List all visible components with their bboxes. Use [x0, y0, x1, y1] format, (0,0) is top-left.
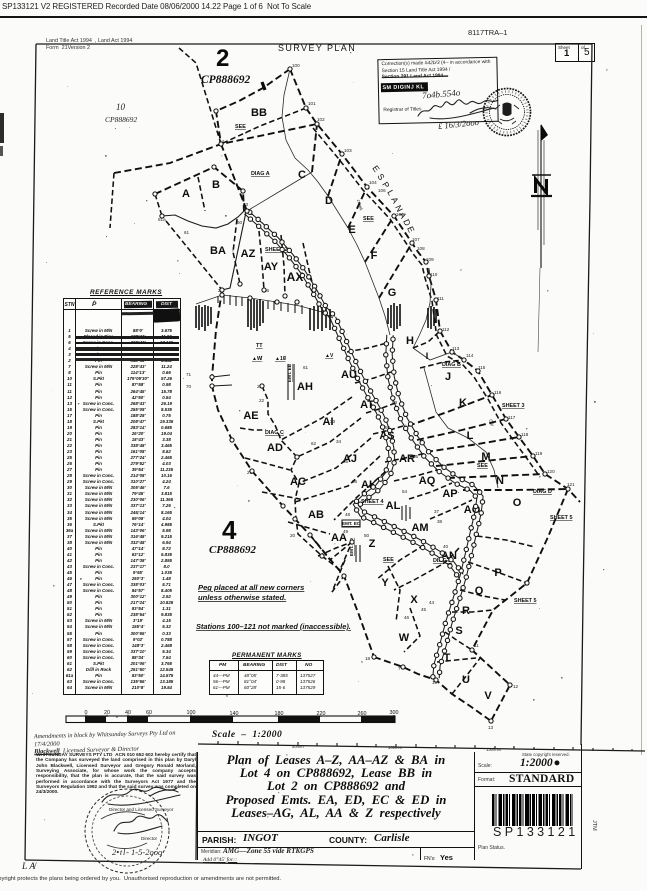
- svg-text:BA: BA: [210, 245, 226, 257]
- svg-text:J: J: [445, 371, 451, 383]
- svg-text:111: 111: [437, 296, 444, 301]
- svg-text:N: N: [496, 475, 504, 487]
- svg-text:L: L: [467, 430, 474, 442]
- svg-text:AP: AP: [442, 488, 457, 500]
- svg-text:2: 2: [216, 45, 229, 72]
- svg-text:11: 11: [474, 643, 479, 648]
- svg-text:▲V: ▲V: [325, 353, 334, 359]
- svg-text:106: 106: [396, 212, 404, 217]
- svg-text:E: E: [405, 225, 417, 235]
- svg-text:23: 23: [257, 384, 263, 389]
- svg-text:S: S: [375, 172, 387, 183]
- svg-text:AZ: AZ: [241, 248, 256, 260]
- svg-text:D: D: [401, 218, 413, 229]
- svg-text:TT: TT: [256, 343, 263, 349]
- svg-text:AB: AB: [308, 509, 324, 521]
- svg-text:20: 20: [290, 533, 296, 538]
- svg-text:EMT. EC: EMT. EC: [342, 521, 361, 526]
- svg-text:61a: 61a: [158, 217, 166, 222]
- svg-text:DIAG D: DIAG D: [533, 489, 552, 495]
- svg-text:EMT. ED: EMT. ED: [349, 537, 354, 556]
- svg-text:SEE: SEE: [363, 216, 374, 222]
- svg-text:63: 63: [243, 202, 249, 207]
- svg-text:AY: AY: [264, 261, 279, 273]
- svg-text:109: 109: [426, 257, 434, 262]
- svg-text:AR: AR: [399, 453, 415, 465]
- svg-text:AM: AM: [411, 522, 428, 534]
- svg-text:Stations 100–121 not marked (i: Stations 100–121 not marked (inaccessibl…: [196, 622, 351, 631]
- svg-text:CP888692: CP888692: [105, 115, 137, 124]
- svg-text:22: 22: [259, 398, 265, 403]
- svg-text:115: 115: [478, 365, 486, 370]
- svg-text:16: 16: [432, 680, 438, 685]
- svg-text:116: 116: [494, 390, 502, 395]
- svg-text:20: 20: [104, 710, 110, 716]
- svg-text:Peg placed at all new corners: Peg placed at all new corners: [198, 583, 304, 592]
- svg-text:AN: AN: [441, 550, 457, 562]
- svg-text:F: F: [371, 250, 378, 262]
- svg-text:60: 60: [146, 710, 152, 716]
- svg-text:M: M: [481, 451, 490, 463]
- svg-text:106: 106: [378, 188, 386, 193]
- svg-text:AS: AS: [379, 430, 394, 442]
- svg-text:55: 55: [413, 454, 419, 459]
- svg-text:42: 42: [457, 566, 463, 571]
- svg-text:G: G: [388, 287, 397, 299]
- svg-text:AX: AX: [287, 270, 304, 284]
- svg-text:SEE: SEE: [477, 463, 488, 469]
- svg-text:48: 48: [345, 512, 351, 517]
- svg-text:H: H: [406, 335, 414, 347]
- svg-text:AI: AI: [323, 416, 334, 428]
- svg-text:K: K: [459, 397, 467, 409]
- svg-text:62: 62: [311, 441, 317, 446]
- svg-text:40: 40: [443, 544, 449, 549]
- svg-text:220: 220: [317, 711, 326, 717]
- svg-text:26: 26: [264, 288, 270, 293]
- svg-text:S: S: [455, 625, 462, 637]
- svg-text:114: 114: [466, 353, 474, 358]
- svg-text:34: 34: [336, 439, 342, 444]
- svg-text:121: 121: [567, 482, 575, 487]
- svg-text:21: 21: [247, 470, 253, 475]
- svg-text:AA: AA: [331, 532, 347, 544]
- svg-text:Gly: Gly: [488, 419, 495, 428]
- svg-text:SEE: SEE: [383, 557, 394, 563]
- svg-text:44: 44: [429, 600, 435, 605]
- svg-text:BB: BB: [251, 107, 267, 119]
- svg-text:AE: AE: [243, 410, 258, 422]
- svg-text:12: 12: [513, 684, 519, 689]
- svg-text:10: 10: [116, 102, 126, 112]
- svg-text:2: 2: [250, 211, 253, 216]
- svg-text:46: 46: [354, 498, 360, 503]
- svg-text:AL: AL: [386, 500, 401, 512]
- svg-text:A: A: [397, 210, 409, 220]
- svg-text:DIAG D: DIAG D: [433, 558, 452, 564]
- svg-text:100: 100: [187, 710, 196, 716]
- svg-text:Scale – 1:2000: Scale – 1:2000: [212, 730, 282, 740]
- svg-text:B: B: [212, 179, 220, 191]
- svg-text:EMT. EB: EMT. EB: [287, 363, 292, 382]
- svg-text:49: 49: [343, 529, 349, 534]
- svg-text:13: 13: [488, 725, 494, 730]
- svg-text:I: I: [426, 351, 429, 361]
- svg-text:P: P: [380, 180, 392, 191]
- svg-text:101: 101: [308, 101, 316, 106]
- svg-text:SHEET 5: SHEET 5: [550, 515, 572, 521]
- svg-text:AK: AK: [361, 479, 377, 491]
- svg-text:70: 70: [186, 384, 192, 389]
- svg-text:A: A: [389, 195, 401, 206]
- svg-text:104: 104: [369, 180, 377, 185]
- svg-text:71: 71: [186, 372, 192, 377]
- svg-text:108: 108: [417, 246, 425, 251]
- svg-text:R: R: [462, 605, 470, 617]
- svg-text:113: 113: [452, 346, 460, 351]
- svg-text:102: 102: [317, 117, 325, 122]
- svg-text:D: D: [325, 195, 333, 207]
- svg-text:L: L: [385, 188, 397, 198]
- svg-text:0: 0: [85, 710, 88, 716]
- svg-text:7: 7: [398, 666, 401, 671]
- svg-text:64: 64: [219, 139, 225, 144]
- svg-text:119: 119: [535, 451, 543, 456]
- svg-text:DIAG B: DIAG B: [442, 362, 461, 368]
- svg-text:AT: AT: [360, 399, 374, 411]
- svg-text:Y: Y: [381, 577, 389, 589]
- svg-text:50: 50: [364, 533, 370, 538]
- svg-text:107: 107: [412, 237, 420, 242]
- svg-text:36: 36: [352, 479, 358, 484]
- svg-text:56: 56: [385, 425, 391, 430]
- svg-text:E: E: [370, 163, 382, 174]
- svg-text:SHEET 4: SHEET 4: [361, 499, 383, 505]
- svg-text:AU: AU: [341, 369, 357, 381]
- svg-text:45: 45: [421, 607, 427, 612]
- svg-text:61: 61: [303, 365, 309, 370]
- svg-text:E: E: [348, 224, 355, 236]
- svg-text:AJ: AJ: [343, 453, 357, 465]
- svg-text:103: 103: [344, 148, 352, 153]
- svg-text:▲W̸: ▲W̸: [252, 356, 263, 362]
- svg-text:112: 112: [442, 327, 450, 332]
- svg-text:140: 140: [230, 711, 239, 717]
- svg-text:▲16̸: ▲16̸: [275, 356, 287, 362]
- svg-text:46: 46: [404, 615, 410, 620]
- svg-text:117: 117: [508, 415, 516, 420]
- svg-text:creek: creek: [356, 199, 364, 212]
- svg-text:40: 40: [125, 710, 131, 716]
- svg-text:unless otherwise stated.: unless otherwise stated.: [198, 593, 286, 602]
- svg-text:37: 37: [434, 509, 440, 514]
- svg-text:53: 53: [392, 400, 398, 405]
- svg-text:60: 60: [237, 220, 243, 225]
- svg-text:120: 120: [547, 469, 555, 474]
- svg-text:18: 18: [365, 656, 371, 661]
- svg-text:C: C: [298, 169, 306, 181]
- svg-text:54: 54: [402, 489, 408, 494]
- svg-text:CP888692: CP888692: [201, 74, 250, 86]
- svg-text:X: X: [410, 594, 418, 606]
- svg-text:260: 260: [358, 711, 367, 717]
- svg-text:N: N: [393, 203, 405, 214]
- svg-text:SHEET 5: SHEET 5: [514, 598, 536, 604]
- svg-text:38: 38: [437, 519, 443, 524]
- svg-text:AC: AC: [290, 476, 306, 488]
- svg-text:U: U: [462, 674, 470, 686]
- svg-text:35: 35: [343, 459, 349, 464]
- svg-text:AQ: AQ: [419, 475, 436, 487]
- svg-text:Q: Q: [475, 585, 484, 597]
- svg-text:P: P: [494, 567, 501, 579]
- svg-text:O: O: [513, 497, 522, 509]
- svg-text:110: 110: [430, 272, 438, 277]
- svg-text:SEE: SEE: [235, 124, 246, 130]
- svg-text:A: A: [182, 188, 190, 200]
- svg-text:V: V: [484, 690, 492, 702]
- svg-text:100: 100: [292, 63, 300, 68]
- svg-text:25: 25: [218, 288, 224, 293]
- svg-text:4: 4: [222, 515, 237, 545]
- svg-text:AO: AO: [464, 504, 481, 516]
- svg-text:180: 180: [275, 711, 284, 717]
- svg-text:300: 300: [390, 710, 399, 716]
- svg-text:W: W: [399, 632, 410, 644]
- svg-text:AD: AD: [267, 442, 283, 454]
- svg-text:SHEET 2: SHEET 2: [265, 247, 287, 253]
- svg-text:51: 51: [294, 455, 300, 460]
- svg-text:61: 61: [184, 230, 190, 235]
- svg-text:SURVEY PLAN: SURVEY PLAN: [278, 43, 356, 53]
- svg-text:SHEET 3: SHEET 3: [502, 403, 524, 409]
- svg-text:AH: AH: [297, 381, 313, 393]
- svg-text:0: 0: [524, 582, 527, 587]
- svg-text:T: T: [444, 652, 451, 664]
- svg-text:DIAG A: DIAG A: [251, 171, 270, 177]
- svg-text:DIAG C: DIAG C: [265, 430, 284, 436]
- svg-text:33: 33: [330, 419, 336, 424]
- svg-text:CP888692: CP888692: [209, 544, 257, 556]
- svg-text:118: 118: [521, 432, 529, 437]
- svg-text:Z: Z: [369, 538, 376, 550]
